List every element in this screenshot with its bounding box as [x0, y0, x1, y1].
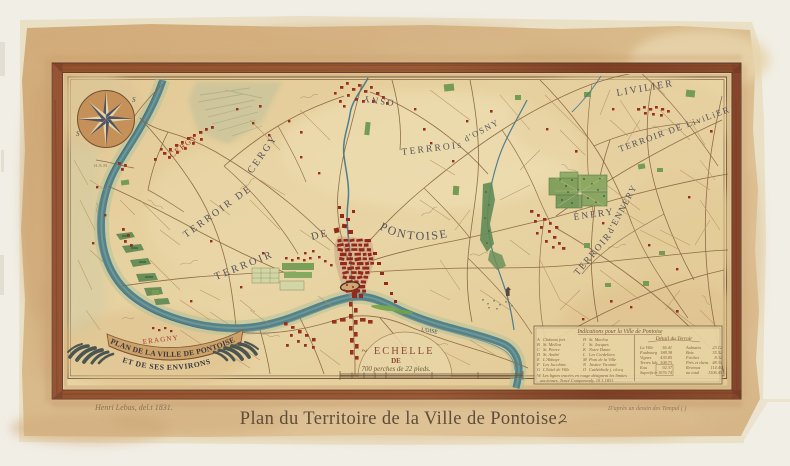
svg-text:1306.45: 1306.45 [708, 370, 723, 375]
svg-text:1076.74: 1076.74 [658, 370, 673, 375]
svg-text:D'après un dessin des Tempul: D'après un dessin des Tempul ( ) [607, 405, 686, 412]
svg-text:L'hôtel de Ville: L'hôtel de Ville [542, 367, 570, 372]
svg-text:Détail du Terroir: Détail du Terroir [655, 336, 694, 342]
svg-text:DE: DE [391, 357, 401, 365]
svg-text:Cathédrale j. clocq: Cathédrale j. clocq [589, 367, 624, 372]
svg-text:S: S [132, 96, 136, 104]
svg-text:700 perches de 22 pieds.: 700 perches de 22 pieds. [361, 365, 430, 373]
svg-text:Henri Lebas, del.t 1831.: Henri Lebas, del.t 1831. [94, 403, 173, 412]
svg-text:S: S [76, 130, 80, 138]
svg-text:Plan du Territoire de la Ville: Plan du Territoire de la Ville de Pontoi… [240, 409, 562, 429]
svg-text:Indications pour la Ville de P: Indications pour la Ville de Pontoise [576, 329, 662, 335]
svg-text:Superficie: Superficie [640, 370, 658, 375]
svg-text:HAM: HAM [94, 164, 108, 169]
svg-text:au total: au total [686, 370, 700, 375]
svg-text:~ ECHELLE: ~ ECHELLE [362, 346, 435, 357]
